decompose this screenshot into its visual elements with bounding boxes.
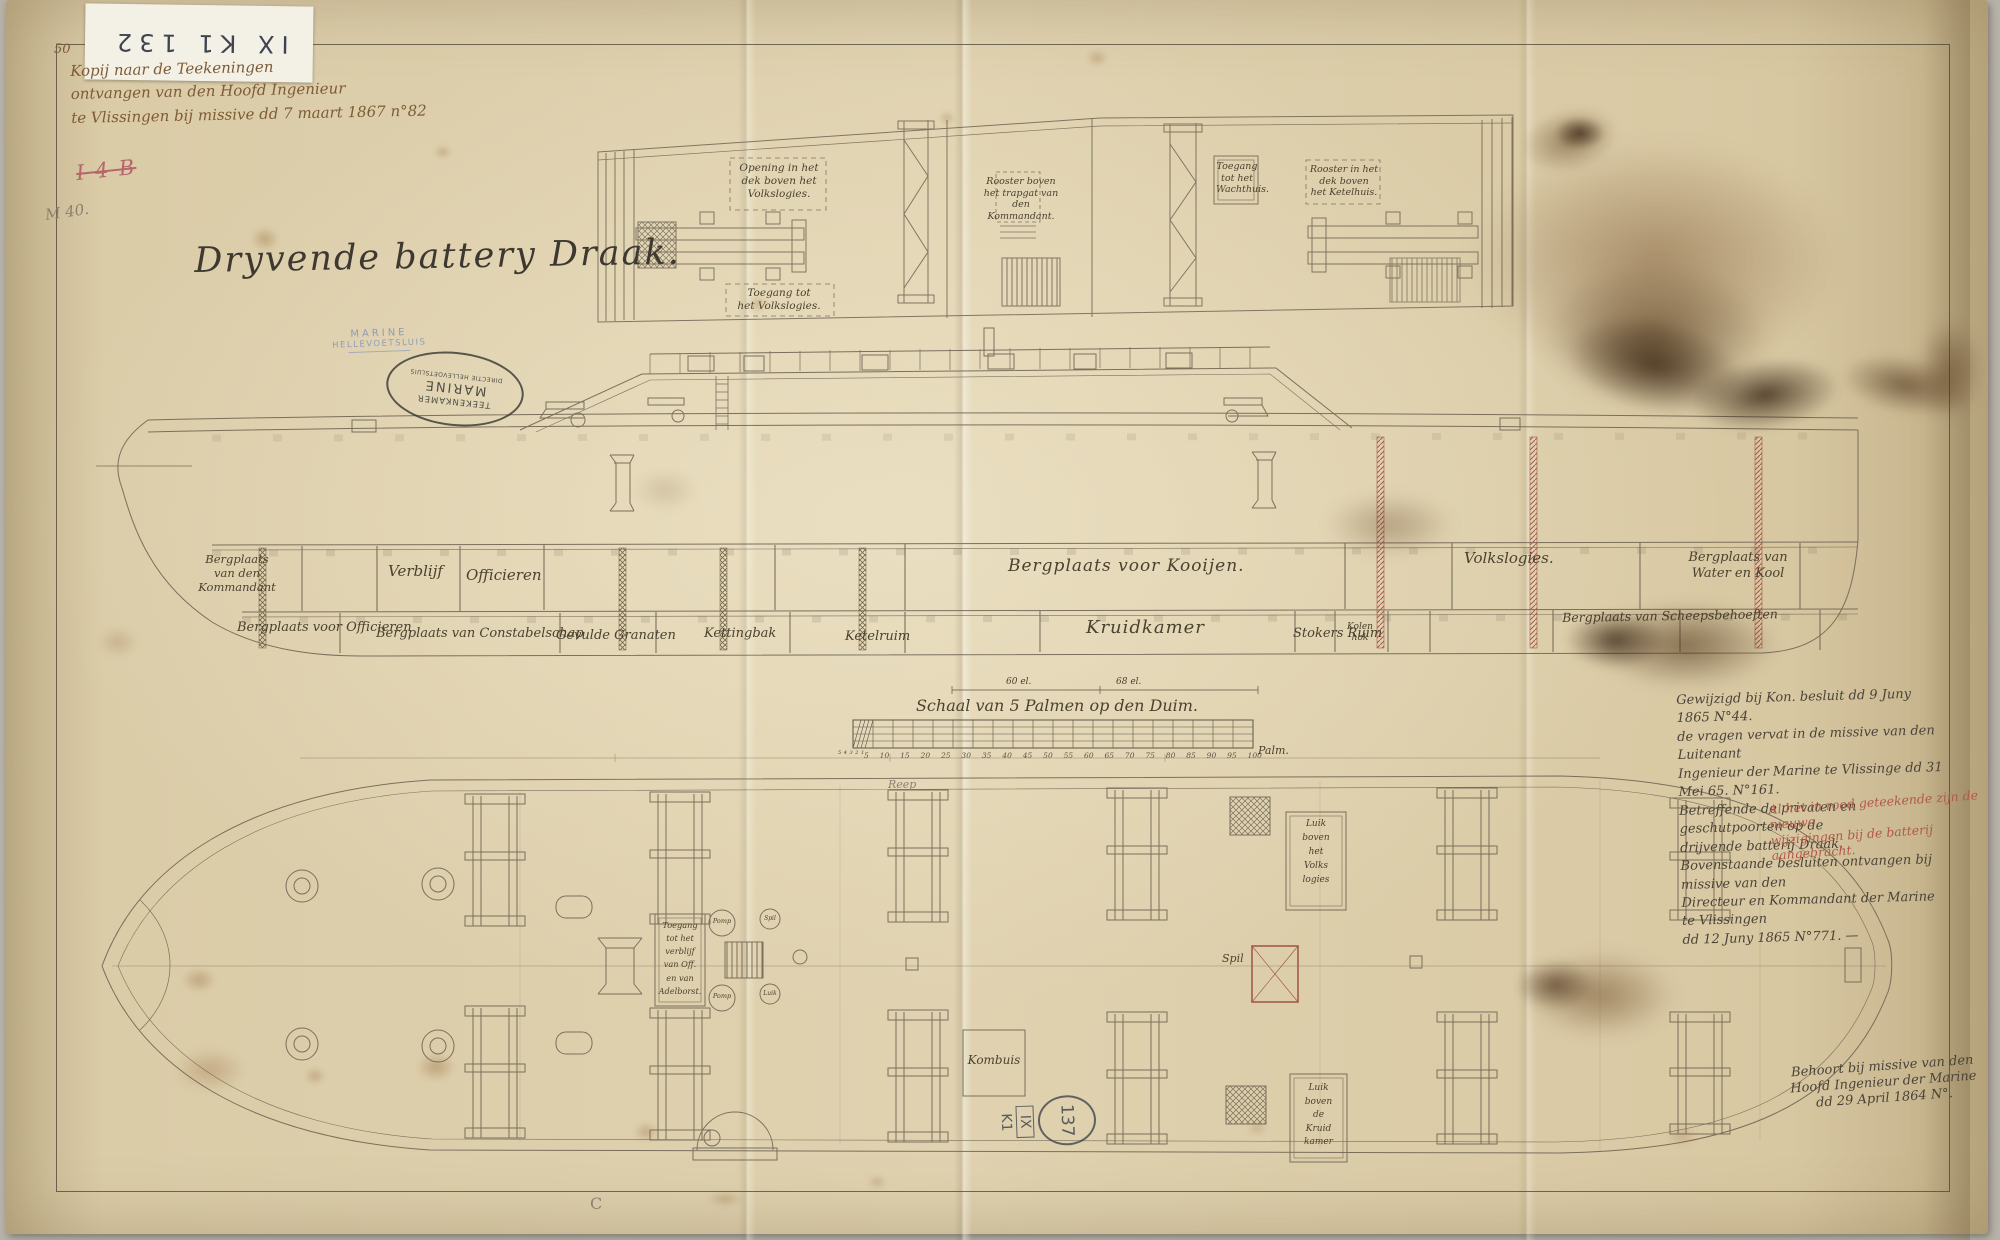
scale-tick: 60	[1084, 751, 1094, 760]
classmark-ix: IX	[1015, 1105, 1034, 1138]
scale-tick: 75	[1145, 751, 1155, 760]
handwritten-note: Kopij naar de Teekeningen ontvangen van …	[70, 53, 427, 130]
label-rooster-trapgat: Rooster boven het trapgat van den Komman…	[978, 176, 1064, 222]
profile-drawing	[96, 328, 1858, 656]
label-rooster-ketelhuis: Rooster in het dek boven het Ketelhuis.	[1308, 164, 1380, 199]
bottom-letter-c: C	[590, 1194, 602, 1214]
label-pomp-2: Pomp	[706, 993, 738, 1001]
label-kettingbak: Kettingbak	[704, 626, 776, 642]
label-water-kool: Bergplaats van Water en Kool	[1668, 550, 1808, 582]
label-pomp-1: Pomp	[706, 918, 738, 926]
scale-tick: 95	[1227, 751, 1237, 760]
label-reep: Reep	[888, 778, 916, 791]
label-verblijf: Verblijf	[388, 562, 443, 580]
scale-tick: 30	[961, 751, 971, 760]
scale-tick: 5	[864, 751, 869, 760]
scale-subdivisions: 5 4 3 2 1	[838, 750, 865, 756]
scale-tick: 40	[1002, 751, 1012, 760]
scale-tick: 10	[880, 751, 890, 760]
scale-tick: 35	[982, 751, 992, 760]
scale-tick: 15	[900, 751, 910, 760]
scale-unit: Palm.	[1258, 744, 1289, 757]
label-gevulde-granaten: Gevulde Granaten	[556, 628, 676, 644]
label-toegang-wachthuis: Toegang tot het Wachthuis.	[1216, 161, 1258, 196]
label-toegang-volkslogies: Toegang tot het Volkslogies.	[724, 287, 834, 313]
scale-tick: 50	[1043, 751, 1053, 760]
scale-tick: 80	[1166, 751, 1176, 760]
scale-tick: 55	[1064, 751, 1074, 760]
label-stokers-ruim: Stokers Ruim	[1293, 626, 1382, 642]
scanned-ship-drawing: IX K1 132 50 Kopij naar de Teekeningen o…	[0, 0, 2000, 1240]
label-toegang-verblijf: Toegang tot het verblijf van Off. en van…	[658, 919, 702, 998]
label-opening-dek: Opening in het dek boven het Volkslogies…	[733, 162, 825, 200]
scale-tick: 90	[1207, 751, 1217, 760]
label-kruidkamer: Kruidkamer	[1086, 617, 1205, 639]
label-ketelruim: Ketelruim	[845, 629, 910, 645]
scale-tick: 65	[1104, 751, 1114, 760]
scale-title: Schaal van 5 Palmen op den Duim.	[912, 696, 1202, 716]
label-kombuis: Kombuis	[966, 1053, 1022, 1068]
dim-60: 60 el.	[1006, 677, 1031, 688]
scale-tick: 45	[1023, 751, 1033, 760]
scale-tick: 25	[941, 751, 951, 760]
label-officieren: Officieren	[466, 566, 542, 584]
blue-stamp-line2: HELLEVOETSLUIS	[332, 337, 427, 350]
scale-tick: 85	[1186, 751, 1196, 760]
sticker-text: IX K1 132	[110, 28, 289, 58]
corner-number: 50	[54, 42, 71, 58]
label-kommandant: Bergplaats van den Kommandant	[186, 552, 288, 594]
circled-number: 137	[1037, 1094, 1097, 1146]
circled-classmark: 137 IX K1	[997, 1094, 1097, 1147]
drawing-title: Dryvende battery Draak.	[194, 232, 681, 283]
label-luik-kruidkamer: Luik boven de Kruid kamer	[1294, 1082, 1343, 1150]
marine-blue-stamp: MARINE HELLEVOETSLUIS	[332, 326, 427, 353]
label-volkslogies: Volkslogies.	[1464, 549, 1554, 567]
label-luik-volkslogies: Luik boven het Volks logies	[1290, 818, 1342, 888]
classmark-k1: K1	[997, 1097, 1015, 1148]
label-luik-small: Luik	[756, 990, 784, 997]
label-spil: Spil	[1222, 952, 1244, 965]
label-spil-small: Spil	[756, 915, 784, 922]
scale-tick: 70	[1125, 751, 1135, 760]
dim-68: 68 el.	[1116, 677, 1141, 688]
scale-tick: 20	[921, 751, 931, 760]
label-kooijen: Bergplaats voor Kooijen.	[1008, 556, 1245, 577]
label-constabelschap: Bergplaats van Constabelschap	[376, 626, 584, 642]
scale-ticks: 5101520253035404550556065707580859095100	[864, 751, 1262, 760]
